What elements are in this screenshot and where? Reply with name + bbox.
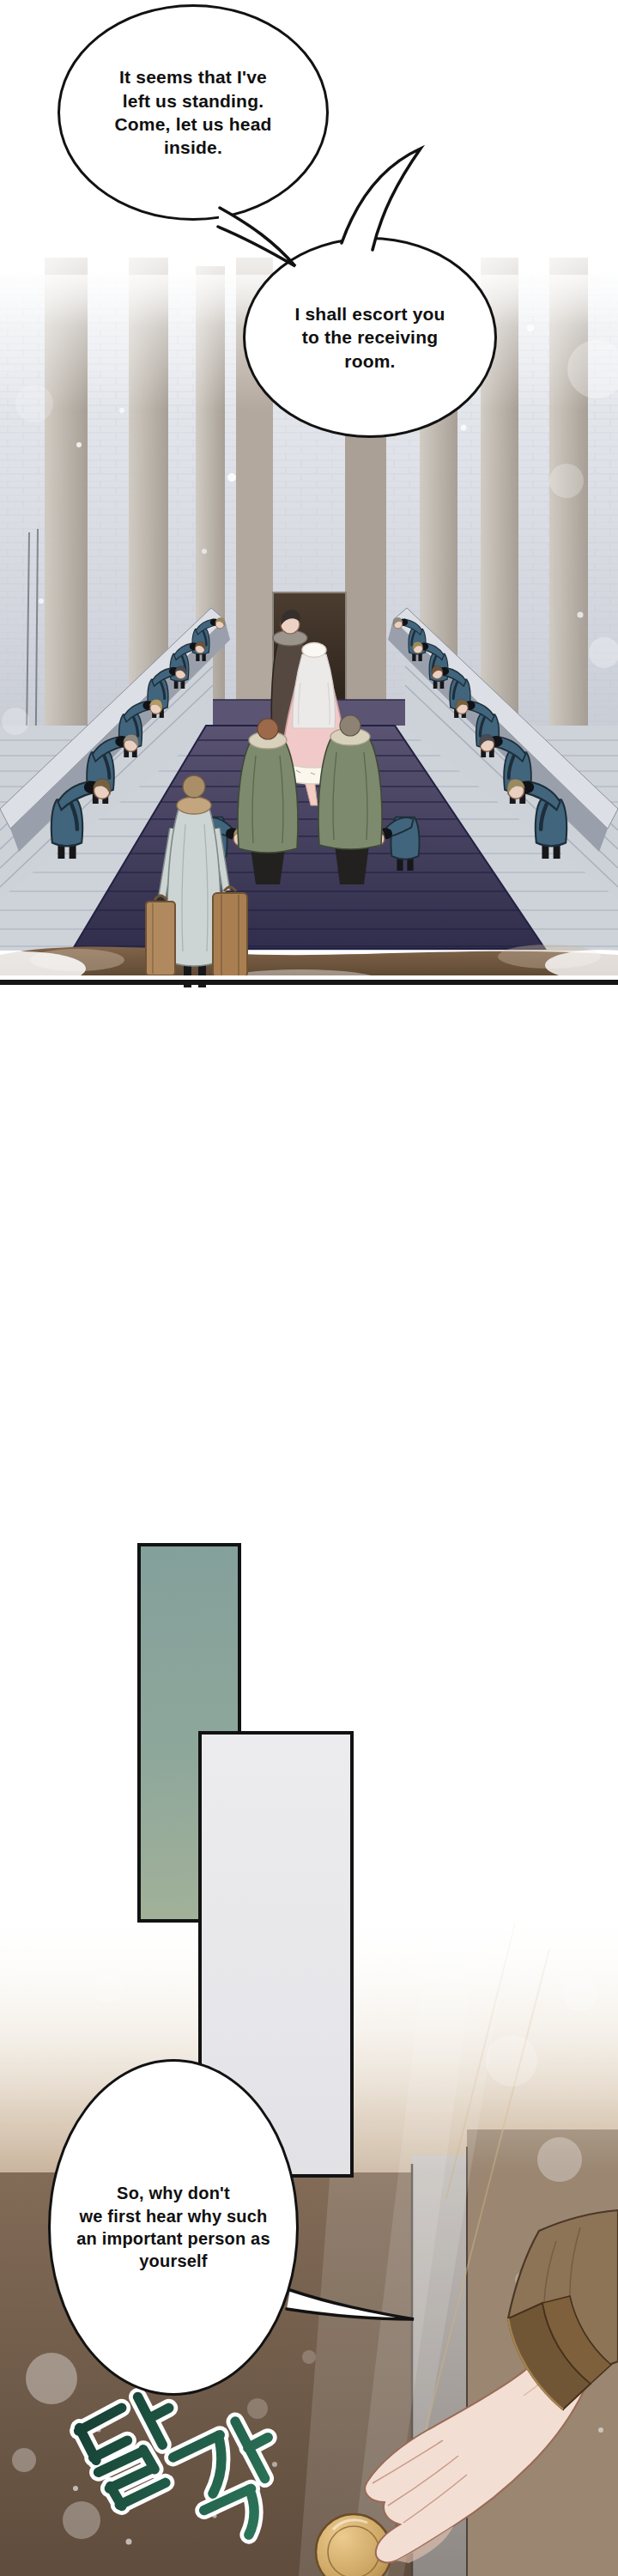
panel-border-line [0, 980, 618, 985]
speech-bubble-2-tail [333, 142, 427, 258]
speech-bubble-3-text: So, why don't we first hear why such an … [76, 2182, 270, 2273]
speech-bubble-3-tail [283, 2280, 425, 2330]
speech-bubble-1-text: It seems that I've left us standing. Com… [114, 65, 271, 159]
speech-bubble-1: It seems that I've left us standing. Com… [58, 4, 329, 221]
comic-page: It seems that I've left us standing. Com… [0, 0, 618, 2576]
speech-bubble-3: So, why don't we first hear why such an … [48, 2059, 299, 2396]
speech-bubble-1-tail [215, 196, 309, 273]
speech-bubble-2-text: I shall escort you to the receiving room… [294, 302, 445, 373]
